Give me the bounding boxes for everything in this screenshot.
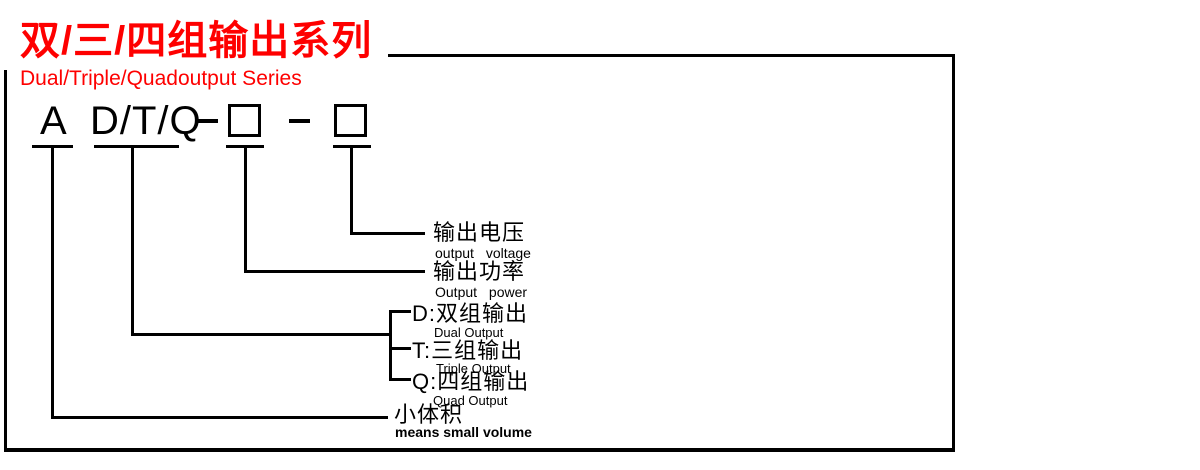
border-right-line [952,54,955,452]
output-voltage-label-zh: 输出电压 [433,221,525,245]
code-power-box [228,104,261,137]
small-volume-label-en: means small volume [395,425,532,440]
dual-output-label-zh: D:双组输出 [412,302,528,326]
triple-output-label-zh: T:三组输出 [412,339,523,363]
series-title-zh: 双/三/四组输出系列 [20,20,372,62]
prefix-callout-vline [51,145,54,419]
prefix-callout-hline [51,416,388,419]
datasheet-naming-diagram: { "series_header": { "title_zh": "双/三/四组… [0,0,1200,470]
border-left-line [4,70,7,448]
type-callout-hline [131,333,392,336]
code-dash-2 [289,119,310,123]
output-power-label-zh: 输出功率 [433,260,525,284]
series-title-en: Dual/Triple/Quadoutput Series [20,67,302,90]
border-bottom-line [4,448,955,452]
output-power-label-en: Output power [435,285,527,300]
code-type-options: D/T/Q [90,101,202,141]
voltage-callout-hline [350,232,425,235]
type-bracket-tick-quad [389,378,411,381]
code-voltage-box [334,104,367,137]
underline-type [94,145,179,148]
power-callout-hline [244,270,425,273]
border-top-line [388,54,954,57]
code-prefix: A [40,101,68,141]
type-bracket-tick-dual [389,310,411,313]
code-dash-1 [197,119,218,123]
quad-output-label-zh: Q:四组输出 [412,370,529,394]
power-callout-vline [244,145,247,273]
type-bracket-vline [389,310,392,381]
type-bracket-tick-triple [389,347,411,350]
voltage-callout-vline [350,145,353,235]
type-callout-vline [131,145,134,336]
